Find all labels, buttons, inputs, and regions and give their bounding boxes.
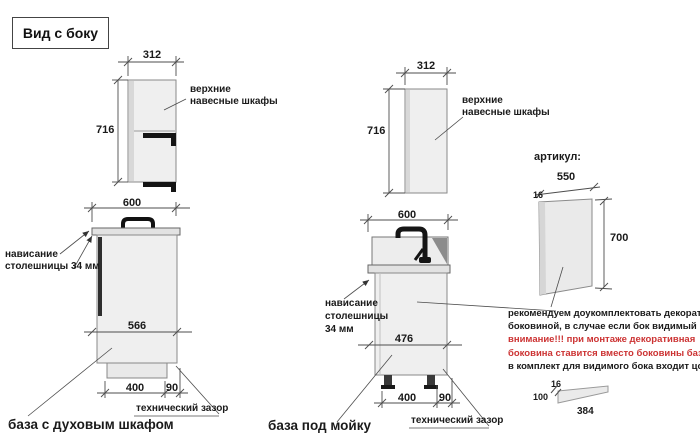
decor-panel: [539, 199, 592, 295]
dim-left-gap: 90: [166, 382, 178, 394]
feet: [381, 375, 438, 389]
caption-sink-base: база под мойку: [268, 418, 371, 433]
middle-upper-cabinet: [405, 89, 447, 193]
label-left-overhang: нависание столешницы 34 мм: [5, 249, 100, 273]
dim-strip-thickness: 16: [551, 379, 561, 389]
dim-mid-upper-height: 716: [367, 125, 385, 137]
plinth: [107, 363, 167, 378]
side-view-drawing: Вид с боку 312 716 верхние навесные шкаф…: [0, 0, 700, 438]
countertop: [368, 265, 450, 273]
label-mid-upper-cabinets: верхние навесные шкафы: [462, 95, 554, 119]
dim-left-plinth: 400: [126, 382, 144, 394]
dim-mid-base-width: 600: [398, 209, 416, 221]
dim-panel-height: 700: [610, 232, 628, 244]
page-title: Вид с боку: [12, 17, 109, 49]
dim-mid-gap: 90: [439, 392, 451, 404]
label-left-tech-gap: технический зазор: [136, 403, 228, 415]
oven-handle: [123, 219, 153, 228]
label-mid-tech-gap: технический зазор: [411, 415, 503, 427]
dim-mid-base-depth: 476: [395, 333, 413, 345]
caption-oven-base: база с духовым шкафом: [8, 417, 174, 432]
dim-panel-thickness: 16: [533, 190, 543, 200]
dim-left-upper-width: 312: [143, 49, 161, 61]
dim-left-base-depth: 566: [128, 320, 146, 332]
label-article: артикул:: [534, 151, 581, 163]
label-mid-overhang: нависание столешницы 34 мм: [325, 297, 388, 336]
dim-mid-plinth: 400: [398, 392, 416, 404]
dim-panel-width: 550: [557, 171, 575, 183]
label-left-upper-cabinets: верхние навесные шкафы: [190, 84, 282, 108]
left-base-cabinet: [92, 219, 180, 378]
dim-left-upper-height: 716: [96, 124, 114, 136]
dim-mid-upper-width: 312: [417, 60, 435, 72]
dim-left-base-width: 600: [123, 197, 141, 209]
dim-strip-length: 384: [577, 406, 594, 418]
dim-strip-height: 100: [533, 392, 548, 402]
decor-panel-note: рекомендуем доукомплектовать декоративно…: [508, 307, 700, 373]
left-upper-cabinet: [128, 80, 176, 192]
